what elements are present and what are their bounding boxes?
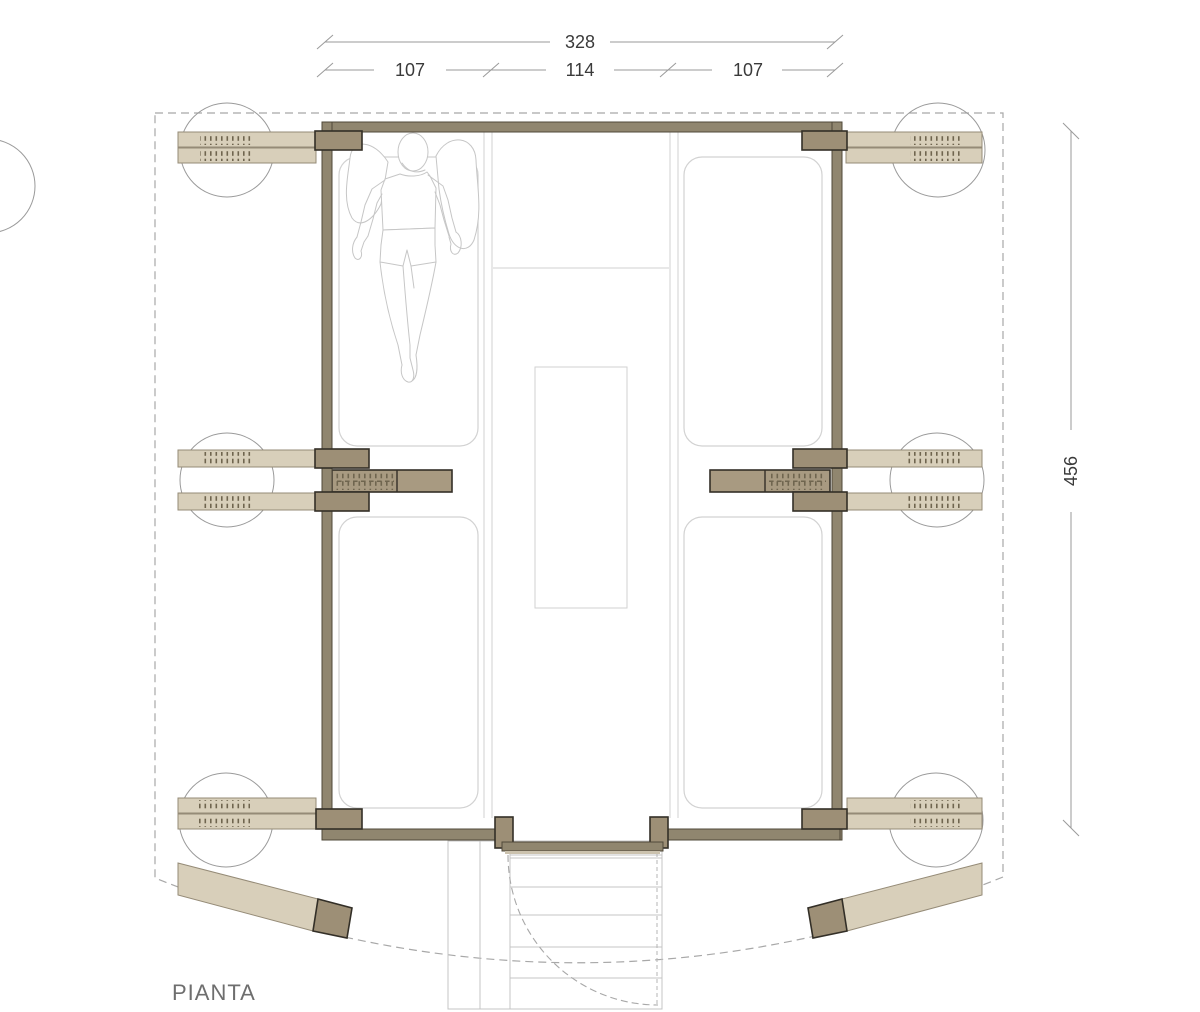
inner-ridge-beams [332,470,830,492]
dimension-top-segments: 107 114 107 [317,60,843,80]
central-corridor [484,132,678,818]
angled-braces [178,863,982,938]
door-swing-arc [508,855,658,1005]
dim-total-width: 328 [565,32,595,52]
wall-right [832,122,842,840]
tree-icon [890,433,984,527]
dim-segment-center: 114 [566,60,595,80]
wall-left [322,122,332,840]
person-head [398,133,428,171]
dim-segment-right: 107 [733,60,763,80]
dimension-top-total: 328 [317,32,843,52]
tree-icon [0,139,35,233]
wall-top [322,122,840,132]
floor-plan-canvas: 328 107 114 107 456 [0,0,1200,1012]
dim-segment-left: 107 [395,60,425,80]
entrance-door [495,817,668,854]
floor-plan-drawing: 328 107 114 107 456 [0,0,1200,1012]
dimension-right-height: 456 [1061,123,1081,836]
drawing-title: PIANTA [172,980,256,1005]
tree-icon [180,433,274,527]
entry-stairs [448,841,662,1009]
wall-bottom-right [663,829,840,840]
mat-top-right [684,157,822,446]
mat-bottom-right [684,517,822,808]
wall-bottom-left [322,829,500,840]
door-leaf [502,842,663,851]
site-boundary [155,113,1003,963]
floor-beams [178,132,982,829]
dim-height: 456 [1061,456,1081,486]
mat-bottom-left [339,517,478,808]
table [535,367,627,608]
person-torso [381,172,436,230]
